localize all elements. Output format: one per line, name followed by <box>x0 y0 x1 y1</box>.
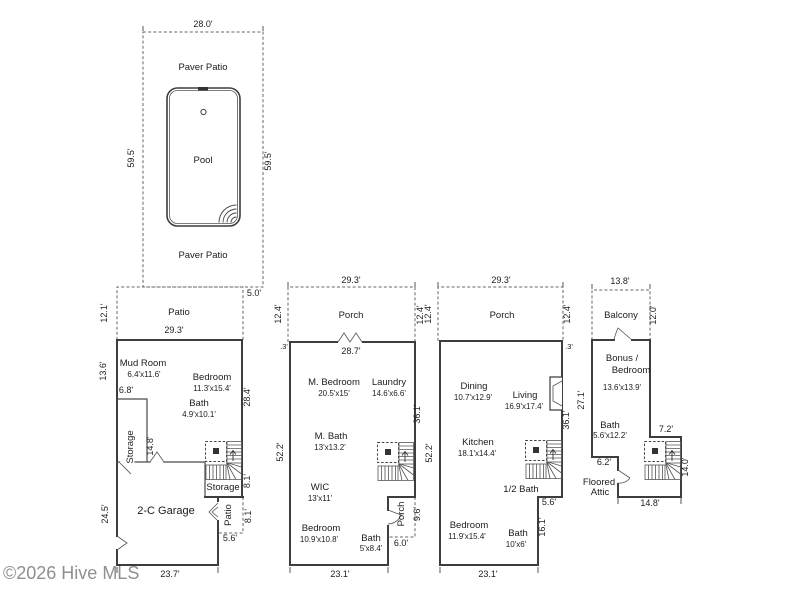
pool-skimmer-icon <box>198 87 208 91</box>
room-dims-bedroom-f1: 11.3'x15.4' <box>193 384 231 393</box>
room-label-living: Living <box>513 390 538 401</box>
floor2-porch-width-label: 29.3' <box>341 275 361 285</box>
floor2-doors <box>338 333 401 524</box>
room-dims-bath-f3: 10'x6' <box>506 540 527 549</box>
room-label-patio-rear: Patio <box>223 504 234 526</box>
room-label-porch-rear-f2: Porch <box>396 502 407 527</box>
room-label-bedroom-f3: Bedroom <box>450 520 489 531</box>
pool-label: Pool <box>193 155 212 166</box>
room-dims-kitchen: 18.1'x14.4' <box>458 449 497 458</box>
floor2-staircase <box>378 443 414 481</box>
floor1-mud-wall-label: 6.8' <box>119 385 134 395</box>
floor3-plan: 29.3' 12.4' 12.4' Porch .3' Dining 10.7'… <box>423 275 573 579</box>
room-label-garage: 2-C Garage <box>137 505 194 517</box>
floor4-bottom-label: 14.8' <box>640 498 660 508</box>
floor2-bottom-label: 23.1' <box>330 569 350 579</box>
floor1-patio-label: Patio <box>168 307 190 318</box>
room-dims-laundry: 14.6'x6.6' <box>372 389 406 398</box>
room-dims-bonus: 13.6'x13.9' <box>603 383 642 392</box>
room-label-m-bedroom: M. Bedroom <box>308 377 360 388</box>
room-label-bedroom-f1: Bedroom <box>193 372 232 383</box>
floor1-doors <box>117 452 218 550</box>
floor1-left-upper-label: 13.6' <box>98 361 108 381</box>
floor2-left-label: 52.2' <box>275 442 285 462</box>
room-dims-bath-f4: 5.6'x12.2' <box>593 431 627 440</box>
room-label-bath-f2: Bath <box>361 533 381 544</box>
room-dims-bath-f2: 5'x8.4' <box>360 544 383 553</box>
room-label-bonus-line1: Bonus / <box>606 353 639 364</box>
floor3-right-upper-label: 36.1' <box>561 410 571 430</box>
floor3-bottom-label: 23.1' <box>478 569 498 579</box>
room-dims-bath-f1: 4.9'x10.1' <box>182 410 216 419</box>
floor2-top-wall-label: 28.7' <box>341 346 361 356</box>
paver-patio-top-label: Paver Patio <box>178 62 227 73</box>
floor1-plan: 5.0' 12.1' Patio 29.3' Mud Room 6.4'x11.… <box>98 287 261 579</box>
floor1-patio-width-label: 29.3' <box>164 325 184 335</box>
room-label-storage-stairs: Storage <box>206 482 239 493</box>
floor1-bottom-label: 23.7' <box>160 569 180 579</box>
room-label-bonus-line2: Bedroom <box>612 365 651 376</box>
floor4-staircase <box>645 442 681 480</box>
pool-drain-icon <box>201 109 206 114</box>
room-label-bath-f4: Bath <box>600 420 620 431</box>
floor2-porch-left-label: 12.4' <box>273 304 283 324</box>
floor4-plan: 13.8' Balcony 12.0' Bonus / Bedroom 13.6… <box>576 276 690 508</box>
room-label-mud-room: Mud Room <box>120 358 167 369</box>
floor2-plan: 29.3' 12.4' 12.4' Porch .3' 28.7' M. Bed… <box>273 275 425 579</box>
floor1-patio-rear-width-label: 5.6' <box>223 533 238 543</box>
pool-area: 28.0' Paver Patio 59.5' 59.5' Pool Paver… <box>126 19 273 287</box>
floor1-stair-wall-label: 8.1' <box>242 474 252 489</box>
pool-area-width-label: 28.0' <box>193 19 213 29</box>
floor3-staircase <box>526 441 562 479</box>
mls-watermark: ©2026 Hive MLS <box>3 563 139 583</box>
floor3-jog-label: .3' <box>565 342 573 351</box>
floor1-staircase <box>206 442 242 480</box>
room-dims-mud-room: 6.4'x11.6' <box>127 370 161 379</box>
floor4-doors <box>614 328 632 483</box>
floor1-right-upper-label: 28.4' <box>242 387 252 407</box>
room-label-bath-f3: Bath <box>508 528 528 539</box>
room-dims-wic: 13'x11' <box>308 494 333 503</box>
floor3-notch-width-label: 5.6' <box>542 497 557 507</box>
floor2-right-upper-label: 36.1' <box>412 404 422 424</box>
floor1-storage-height-label: 14.8' <box>145 436 155 456</box>
room-label-attic-line2: Attic <box>591 487 610 498</box>
pool-area-height-left-label: 59.5' <box>126 148 136 168</box>
room-label-storage-f1: Storage <box>125 430 136 463</box>
floor4-balcony-height-label: 12.0' <box>648 305 658 325</box>
floor4-attic-wall-label: 6.2' <box>597 457 612 467</box>
floor2-jog-label: .3' <box>280 342 288 351</box>
room-label-balcony: Balcony <box>604 310 638 321</box>
floor4-right-lower-label: 14.0' <box>680 457 690 477</box>
floor3-fireplace-icon <box>550 377 562 410</box>
floor2-porch-rear-width-label: 6.0' <box>394 538 409 548</box>
room-label-dining: Dining <box>461 381 488 392</box>
room-label-porch-f3: Porch <box>490 310 515 321</box>
floor1-patio-left-label: 12.1' <box>99 303 109 323</box>
floor4-left-label: 27.1' <box>576 390 586 410</box>
room-dims-m-bath: 13'x13.2' <box>314 443 346 452</box>
floor3-left-label: 52.2' <box>424 443 434 463</box>
room-label-kitchen: Kitchen <box>462 437 494 448</box>
floor1-patio-rear-height-label: 8.1' <box>243 509 253 524</box>
room-label-laundry: Laundry <box>372 377 407 388</box>
room-label-wic: WIC <box>311 482 330 493</box>
room-dims-living: 16.9'x17.4' <box>505 402 544 411</box>
floor3-porch-width-label: 29.3' <box>491 275 511 285</box>
floor3-porch-left-label: 12.4' <box>423 304 433 324</box>
room-dims-dining: 10.7'x12.9' <box>454 393 493 402</box>
room-label-bedroom-f2: Bedroom <box>302 523 341 534</box>
floor2-porch-rear-height-label: 9.6' <box>412 507 422 522</box>
room-label-bath-f1: Bath <box>189 398 209 409</box>
room-label-half-bath: 1/2 Bath <box>503 484 538 495</box>
floor-plan-canvas: 28.0' Paver Patio 59.5' 59.5' Pool Paver… <box>0 0 800 600</box>
room-label-porch-f2: Porch <box>339 310 364 321</box>
floor4-balcony-width-label: 13.8' <box>610 276 630 286</box>
paver-patio-bottom-label: Paver Patio <box>178 250 227 261</box>
room-dims-bedroom-f2: 10.9'x10.8' <box>300 535 339 544</box>
floor3-porch-right-label: 12.4' <box>562 304 572 324</box>
room-dims-bedroom-f3: 11.9'x15.4' <box>448 532 486 541</box>
pool-area-height-right-label: 59.5' <box>263 151 273 171</box>
floor3-notch-height-label: 16.1' <box>537 517 547 537</box>
floor1-patio-offset-label: 5.0' <box>247 288 262 298</box>
room-dims-m-bedroom: 20.5'x15' <box>318 389 350 398</box>
room-label-m-bath: M. Bath <box>315 431 348 442</box>
floor1-left-lower-label: 24.5' <box>100 504 110 524</box>
floor4-jut-width-label: 7.2' <box>659 424 674 434</box>
